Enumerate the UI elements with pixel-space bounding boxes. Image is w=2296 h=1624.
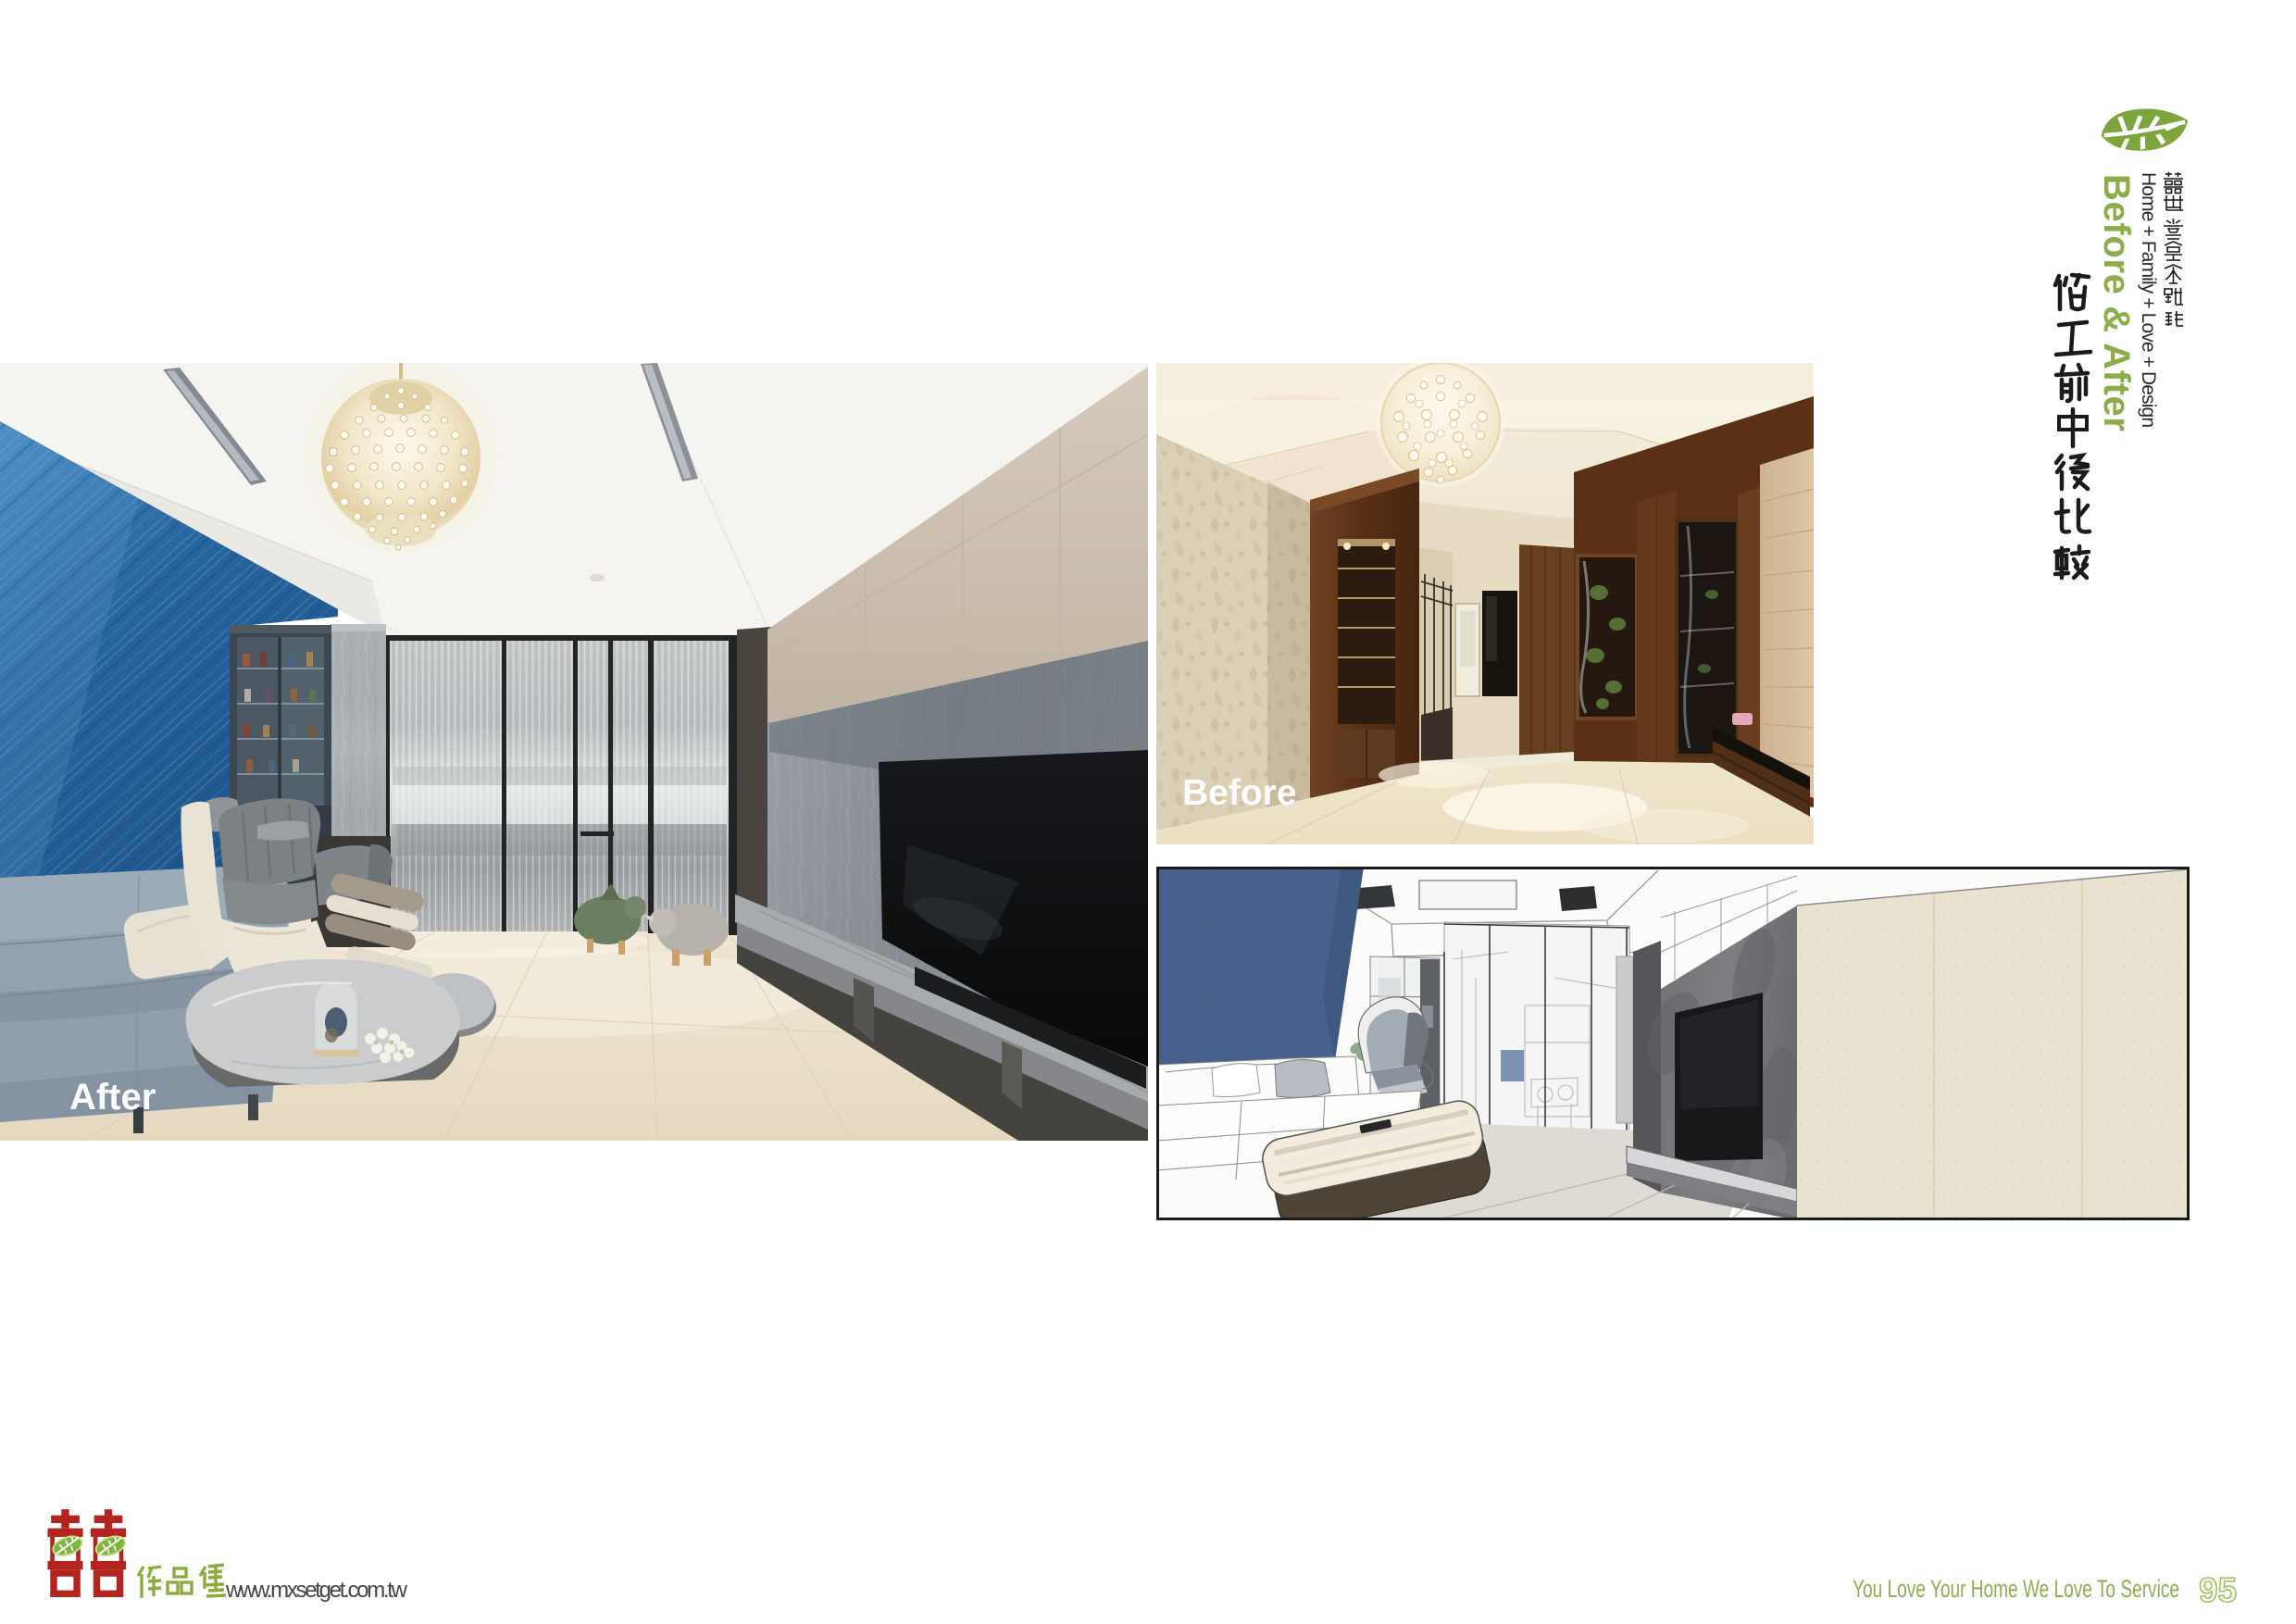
svg-text:Home + Family + Love + Design: Home + Family + Love + Design [2138,172,2159,428]
svg-text:You Love Your Home We Love To: You Love Your Home We Love To Service [1853,1575,2179,1603]
svg-text:95: 95 [2199,1571,2237,1609]
svg-text:Before & After: Before & After [2096,174,2137,431]
svg-text:After: After [69,1077,156,1118]
svg-text:Before: Before [1182,773,1297,813]
svg-text:www.mxsetget.com.tw: www.mxsetget.com.tw [225,1578,408,1603]
